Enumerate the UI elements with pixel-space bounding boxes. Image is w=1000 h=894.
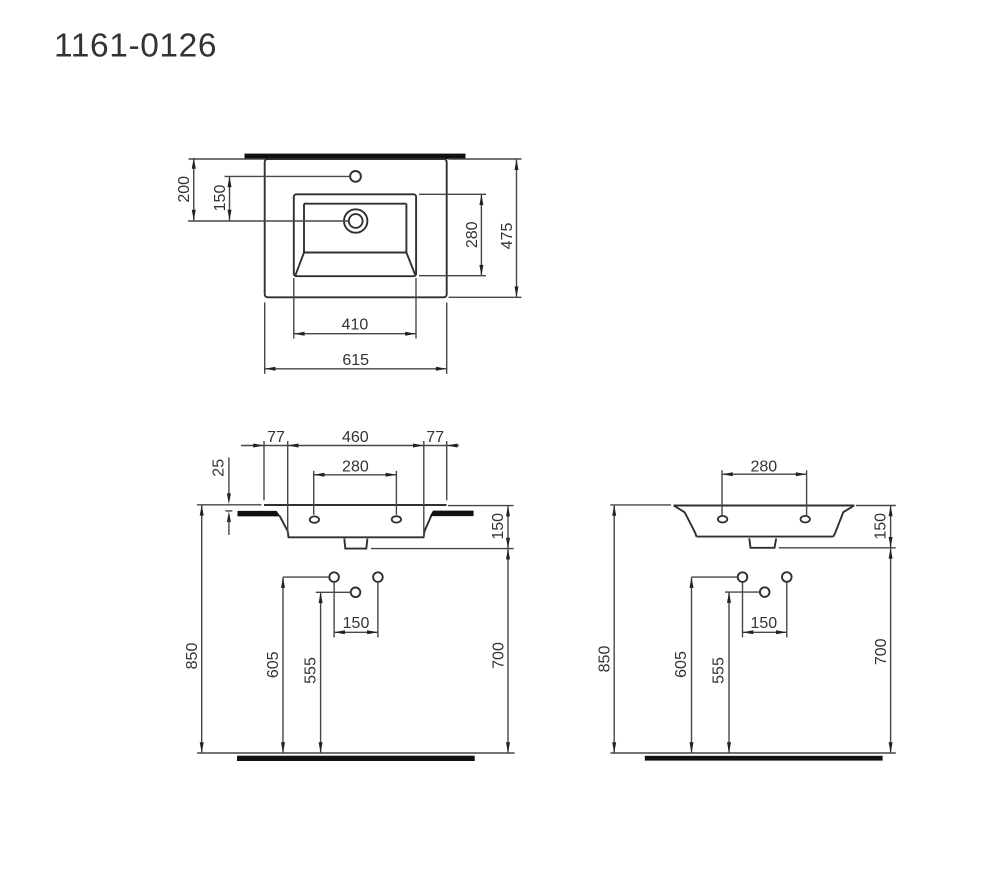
svg-text:280: 280 [750,458,777,475]
svg-text:850: 850 [597,646,614,673]
svg-text:280: 280 [342,459,369,476]
svg-text:25: 25 [210,459,227,477]
svg-text:150: 150 [212,185,229,212]
svg-text:555: 555 [710,657,727,684]
svg-text:200: 200 [176,176,193,203]
svg-text:605: 605 [265,651,282,678]
svg-text:460: 460 [342,429,369,446]
svg-text:615: 615 [342,352,369,369]
svg-text:555: 555 [303,657,320,684]
svg-text:150: 150 [490,513,507,540]
svg-text:700: 700 [873,638,890,665]
svg-text:280: 280 [464,221,481,248]
svg-text:700: 700 [490,642,507,669]
svg-text:850: 850 [184,643,201,670]
svg-text:150: 150 [343,615,370,632]
svg-text:77: 77 [426,429,444,446]
svg-text:475: 475 [499,223,516,250]
svg-text:605: 605 [673,651,690,678]
svg-text:1161-0126: 1161-0126 [54,28,217,65]
svg-text:410: 410 [342,316,369,333]
svg-text:150: 150 [750,615,777,632]
svg-text:77: 77 [267,429,285,446]
svg-text:150: 150 [873,513,890,540]
